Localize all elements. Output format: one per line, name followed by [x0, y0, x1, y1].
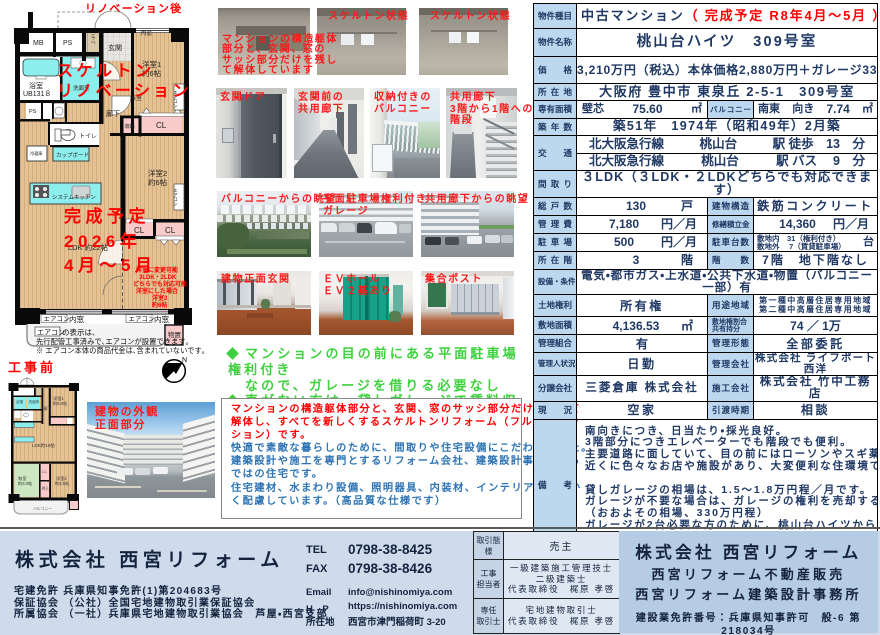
- svg-text:エアコン: エアコン: [173, 188, 179, 207]
- svg-text:浴室: 浴室: [16, 399, 24, 404]
- svg-text:CL: CL: [156, 121, 167, 130]
- svg-text:エアコン: エアコン: [129, 315, 155, 323]
- svg-text:3LDK・2LDK: 3LDK・2LDK: [139, 275, 177, 281]
- svg-text:エアコン: エアコン: [44, 315, 70, 323]
- svg-text:洋室2: 洋室2: [148, 168, 167, 178]
- svg-text:洋室3: 洋室3: [152, 294, 168, 302]
- svg-text:洗面所: 洗面所: [29, 399, 40, 404]
- svg-text:2026年: 2026年: [64, 231, 141, 251]
- svg-text:MB: MB: [33, 40, 44, 47]
- svg-text:CL: CL: [42, 470, 47, 474]
- svg-text:内窓: 内窓: [141, 29, 153, 37]
- svg-text:約4.5帖: 約4.5帖: [55, 480, 69, 487]
- svg-text:カップボード: カップボード: [56, 151, 89, 159]
- svg-text:洋室に変更可能: 洋室に変更可能: [136, 266, 178, 274]
- svg-text:CL: CL: [165, 226, 176, 235]
- svg-text:洋室にした場合: 洋室にした場合: [136, 287, 179, 295]
- svg-text:玄関: 玄関: [108, 43, 122, 52]
- svg-text:工事前: 工事前: [8, 360, 56, 375]
- svg-text:内窓: 内窓: [154, 314, 169, 324]
- svg-text:約6.0帖: 約6.0帖: [53, 400, 67, 407]
- svg-text:※ エアコン本体の商品代金は､含まれていないです｡: ※ エアコン本体の商品代金は､含まれていないです｡: [36, 346, 205, 355]
- svg-text:約6帖: 約6帖: [151, 301, 167, 309]
- svg-text:廊下: 廊下: [44, 405, 52, 411]
- svg-text:トイレ: トイレ: [79, 134, 97, 140]
- svg-text:エアコン: エアコン: [37, 329, 65, 337]
- svg-text:リノベーション後: リノベーション後: [85, 1, 182, 15]
- svg-text:完成予定: 完成予定: [63, 206, 150, 226]
- svg-text:ﾚﾀｰｽﾞ: ﾚﾀｰｽﾞ: [90, 34, 97, 45]
- svg-text:リノベーション: リノベーション: [57, 83, 192, 100]
- svg-text:システムキッチン: システムキッチン: [52, 194, 96, 201]
- svg-text:PS: PS: [29, 109, 37, 115]
- svg-text:UB131８: UB131８: [23, 90, 51, 98]
- svg-text:冷蔵庫: 冷蔵庫: [30, 150, 43, 157]
- svg-text:浴室: 浴室: [29, 81, 43, 90]
- svg-text:スケルトン: スケルトン: [57, 62, 155, 80]
- svg-text:PS: PS: [63, 40, 73, 47]
- svg-text:先行配管工事済みで､エアコンが設置できます｡: 先行配管工事済みで､エアコンが設置できます｡: [36, 337, 189, 346]
- svg-text:収納: 収納: [125, 123, 135, 130]
- svg-text:どちらでも対応可能: どちらでも対応可能: [133, 280, 187, 288]
- svg-text:廊下: 廊下: [106, 109, 120, 118]
- svg-text:バルコニー: バルコニー: [33, 506, 52, 511]
- svg-text:内窓: 内窓: [69, 314, 84, 324]
- svg-text:約6.0帖: 約6.0帖: [18, 480, 32, 487]
- svg-text:の表示は、: の表示は、: [62, 327, 100, 337]
- svg-text:N: N: [182, 357, 187, 364]
- svg-text:押入: 押入: [42, 486, 50, 491]
- svg-text:約6帖: 約6帖: [148, 177, 168, 187]
- svg-text:LDK約10帖: LDK約10帖: [32, 442, 55, 449]
